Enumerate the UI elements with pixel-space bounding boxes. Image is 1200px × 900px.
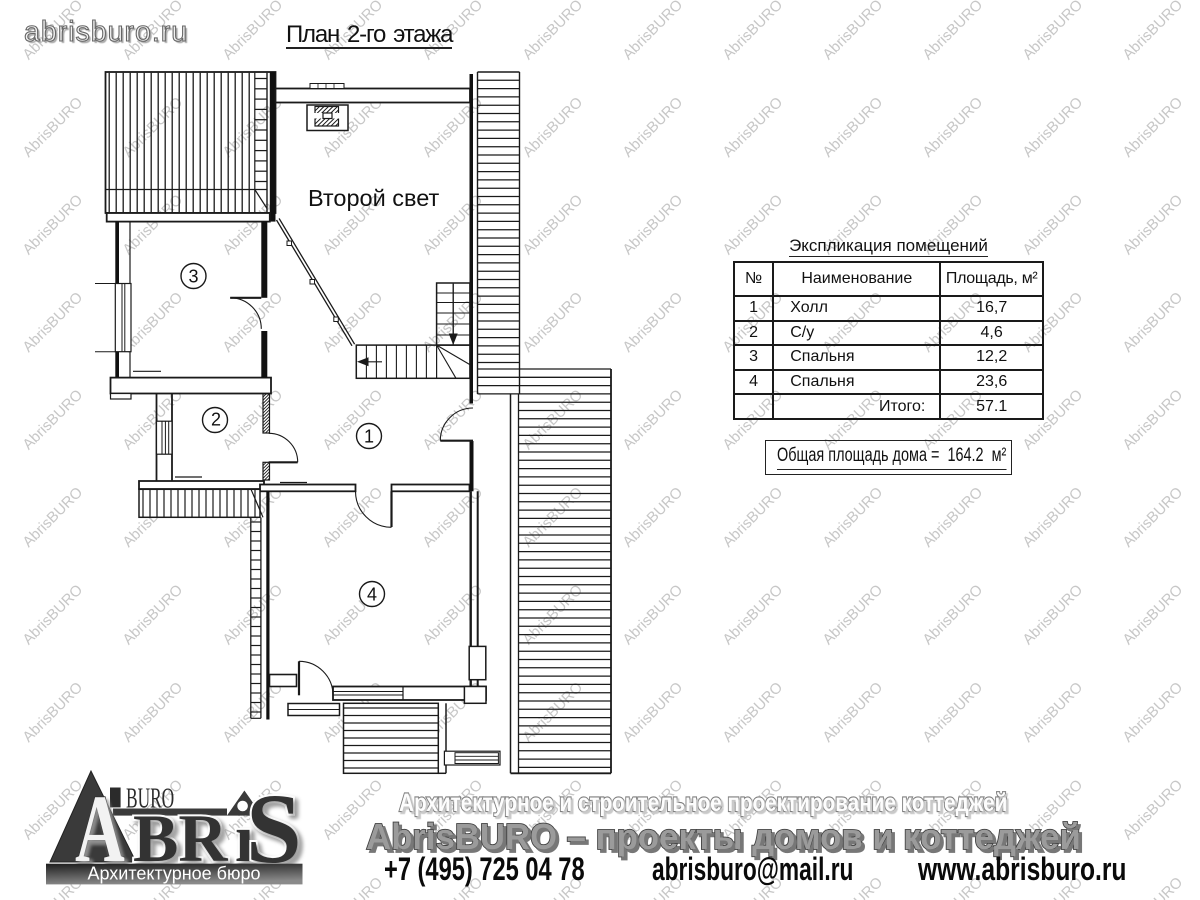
svg-text:AbrisBURO: AbrisBURO [819,581,886,648]
svg-text:AbrisBURO: AbrisBURO [1119,874,1186,900]
svg-text:AbrisBURO: AbrisBURO [519,679,586,746]
svg-text:AbrisBURO: AbrisBURO [619,0,686,63]
svg-text:AbrisBURO: AbrisBURO [1119,679,1186,746]
svg-text:AbrisBURO: AbrisBURO [919,0,986,63]
svg-text:AbrisBURO: AbrisBURO [1119,386,1186,453]
svg-text:AbrisBURO: AbrisBURO [619,386,686,453]
svg-text:AbrisBURO: AbrisBURO [1119,581,1186,648]
svg-text:AbrisBURO: AbrisBURO [419,484,486,551]
svg-text:AbrisBURO: AbrisBURO [19,581,86,648]
svg-text:AbrisBURO: AbrisBURO [419,581,486,648]
svg-text:AbrisBURO: AbrisBURO [1119,94,1186,161]
svg-text:AbrisBURO: AbrisBURO [519,0,586,63]
svg-text:AbrisBURO: AbrisBURO [919,94,986,161]
svg-text:AbrisBURO: AbrisBURO [19,289,86,356]
svg-text:AbrisBURO: AbrisBURO [119,679,186,746]
svg-text:AbrisBURO: AbrisBURO [219,289,286,356]
svg-text:AbrisBURO: AbrisBURO [19,386,86,453]
svg-text:AbrisBURO: AbrisBURO [519,289,586,356]
svg-text:AbrisBURO: AbrisBURO [219,386,286,453]
svg-text:AbrisBURO: AbrisBURO [719,94,786,161]
svg-text:AbrisBURO: AbrisBURO [1119,289,1186,356]
svg-text:AbrisBURO: AbrisBURO [819,94,886,161]
svg-text:AbrisBURO: AbrisBURO [619,581,686,648]
svg-text:AbrisBURO: AbrisBURO [1019,0,1086,63]
svg-text:4: 4 [367,585,377,605]
svg-text:AbrisBURO: AbrisBURO [519,94,586,161]
svg-text:AbrisBURO: AbrisBURO [1019,484,1086,551]
svg-text:AbrisBURO: AbrisBURO [619,94,686,161]
svg-text:AbrisBURO: AbrisBURO [1119,191,1186,258]
svg-text:AbrisBURO: AbrisBURO [419,386,486,453]
svg-text:AbrisBURO: AbrisBURO [319,484,386,551]
svg-text:AbrisBURO: AbrisBURO [919,581,986,648]
svg-text:AbrisBURO: AbrisBURO [19,94,86,161]
svg-text:AbrisBURO: AbrisBURO [719,0,786,63]
svg-text:AbrisBURO: AbrisBURO [819,484,886,551]
svg-text:www.abrisburo.ru: www.abrisburo.ru [917,852,1126,888]
svg-text:2: 2 [211,410,221,430]
svg-text:AbrisBURO: AbrisBURO [519,191,586,258]
svg-text:AbrisBURO: AbrisBURO [119,94,186,161]
svg-text:AbrisBURO: AbrisBURO [1119,0,1186,63]
svg-text:Второй свет: Второй свет [308,185,440,211]
svg-text:+7 (495) 725 04 78: +7 (495) 725 04 78 [384,852,585,887]
svg-text:AbrisBURO: AbrisBURO [1019,581,1086,648]
svg-text:Архитектурное и строительное п: Архитектурное и строительное проектирова… [399,788,1007,816]
svg-text:AbrisBURO: AbrisBURO [619,484,686,551]
svg-text:AbrisBURO: AbrisBURO [619,679,686,746]
svg-text:AbrisBURO: AbrisBURO [719,581,786,648]
svg-text:AbrisBURO: AbrisBURO [1019,679,1086,746]
svg-text:AbrisBURO: AbrisBURO [819,0,886,63]
svg-text:1: 1 [364,427,374,447]
svg-text:AbrisBURO: AbrisBURO [919,484,986,551]
svg-text:AbrisBURO: AbrisBURO [719,484,786,551]
svg-text:AbrisBURO: AbrisBURO [1019,94,1086,161]
svg-text:AbrisBURO: AbrisBURO [719,679,786,746]
svg-text:3: 3 [188,267,198,287]
svg-text:AbrisBURO: AbrisBURO [219,0,286,63]
svg-text:AbrisBURO: AbrisBURO [319,874,386,900]
svg-text:AbrisBURO: AbrisBURO [819,679,886,746]
svg-text:AbrisBURO: AbrisBURO [119,581,186,648]
svg-text:AbrisBURO: AbrisBURO [1119,776,1186,843]
svg-text:AbrisBURO: AbrisBURO [619,191,686,258]
svg-text:AbrisBURO: AbrisBURO [519,581,586,648]
svg-text:AbrisBURO: AbrisBURO [619,289,686,356]
svg-text:AbrisBURO: AbrisBURO [919,679,986,746]
svg-text:Архитектурное бюро: Архитектурное бюро [87,864,260,884]
svg-text:AbrisBURO: AbrisBURO [419,94,486,161]
svg-text:AbrisBURO: AbrisBURO [19,679,86,746]
svg-text:AbrisBURO: AbrisBURO [1119,484,1186,551]
svg-text:AbrisBURO: AbrisBURO [19,484,86,551]
svg-text:AbrisBURO: AbrisBURO [19,191,86,258]
svg-text:abrisburo@mail.ru: abrisburo@mail.ru [652,851,853,887]
svg-text:AbrisBURO: AbrisBURO [219,581,286,648]
